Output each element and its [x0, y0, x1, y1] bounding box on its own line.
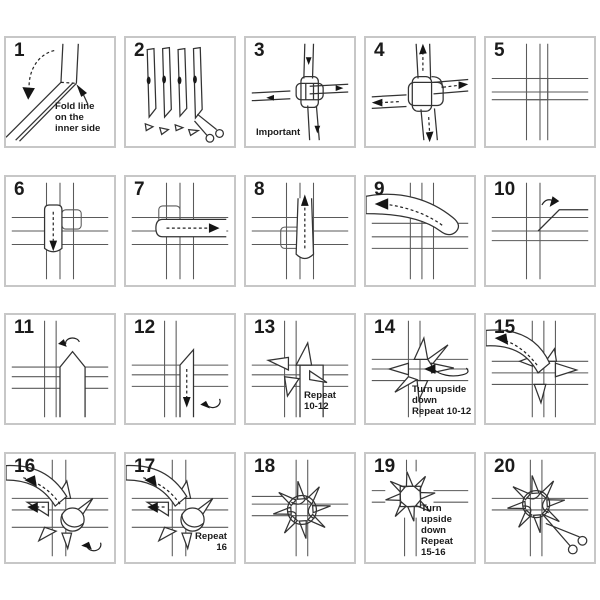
step-12-panel: 12	[124, 313, 236, 425]
step-1-panel: 1 Fold line on the inner side	[4, 36, 116, 148]
step-caption: Turn upside down Repeat 10-12	[412, 385, 476, 418]
star-points	[273, 481, 330, 538]
cut-scraps	[145, 124, 198, 136]
rotate-arrow	[542, 196, 559, 207]
step-5-panel: 5	[484, 36, 596, 148]
step-2-panel: 2	[124, 36, 236, 148]
step-caption: Important	[256, 128, 300, 139]
step-14-panel: 14 Turn upside down Repeat 10-12	[364, 313, 476, 425]
step-number: 19	[374, 457, 395, 476]
step-caption: Turn upside down Repeat 15-16	[421, 504, 474, 559]
step-18-panel: 18	[244, 452, 356, 564]
step-3-panel: 3 Important	[244, 36, 356, 148]
step-number: 2	[134, 41, 145, 60]
fold-left-dashed-arrow	[27, 502, 48, 516]
step-number: 16	[14, 457, 35, 476]
step-number: 20	[494, 457, 515, 476]
rotate-arrow	[200, 399, 220, 409]
step-13-panel: 13 Repeat 10-12	[244, 313, 356, 425]
step-9-panel: 9	[364, 175, 476, 287]
scissors-icon	[544, 515, 587, 553]
scissors-icon	[194, 114, 223, 142]
rotate-arrow	[81, 542, 101, 551]
step-8-panel: 8	[244, 175, 356, 287]
step-caption: Fold line on the inner side	[55, 102, 113, 135]
step-number: 17	[134, 457, 155, 476]
step-caption: Repeat 16	[195, 532, 227, 554]
step-number: 10	[494, 180, 515, 199]
paper-strips	[147, 48, 202, 118]
step-10-panel: 10	[484, 175, 596, 287]
step-number: 9	[374, 180, 385, 199]
step-4-panel: 4	[364, 36, 476, 148]
step-number: 11	[14, 318, 34, 337]
step-20-panel: 20	[484, 452, 596, 564]
step-number: 13	[254, 318, 275, 337]
step-number: 14	[374, 318, 395, 337]
step-number: 15	[494, 318, 515, 337]
pull-outward-dashed-arrows	[372, 44, 468, 142]
step-caption: Repeat 10-12	[304, 391, 336, 413]
step-number: 18	[254, 457, 275, 476]
step-number: 7	[134, 180, 145, 199]
step-number: 5	[494, 41, 505, 60]
instruction-sheet: 1 Fold line on the inner side 2	[0, 0, 600, 600]
fold-left-dashed-arrow	[147, 502, 168, 516]
step-15-panel: 15	[484, 313, 596, 425]
step-19-panel: 19 Turn upside down Repeat 15-16	[364, 452, 476, 564]
step-number: 1	[14, 41, 25, 60]
step-number: 8	[254, 180, 265, 199]
step-11-panel: 11	[4, 313, 116, 425]
step-number: 12	[134, 318, 155, 337]
step-number: 3	[254, 41, 265, 60]
fold-direction-dashed-arrow	[22, 51, 54, 100]
star-points	[508, 475, 565, 532]
step-7-panel: 7	[124, 175, 236, 287]
step-16-panel: 16	[4, 452, 116, 564]
step-17-panel: 17 Repeat 16	[124, 452, 236, 564]
step-number: 6	[14, 180, 25, 199]
pull-direction-arrows	[266, 57, 343, 133]
rotate-arrow	[58, 338, 79, 347]
step-6-panel: 6	[4, 175, 116, 287]
step-number: 4	[374, 41, 385, 60]
